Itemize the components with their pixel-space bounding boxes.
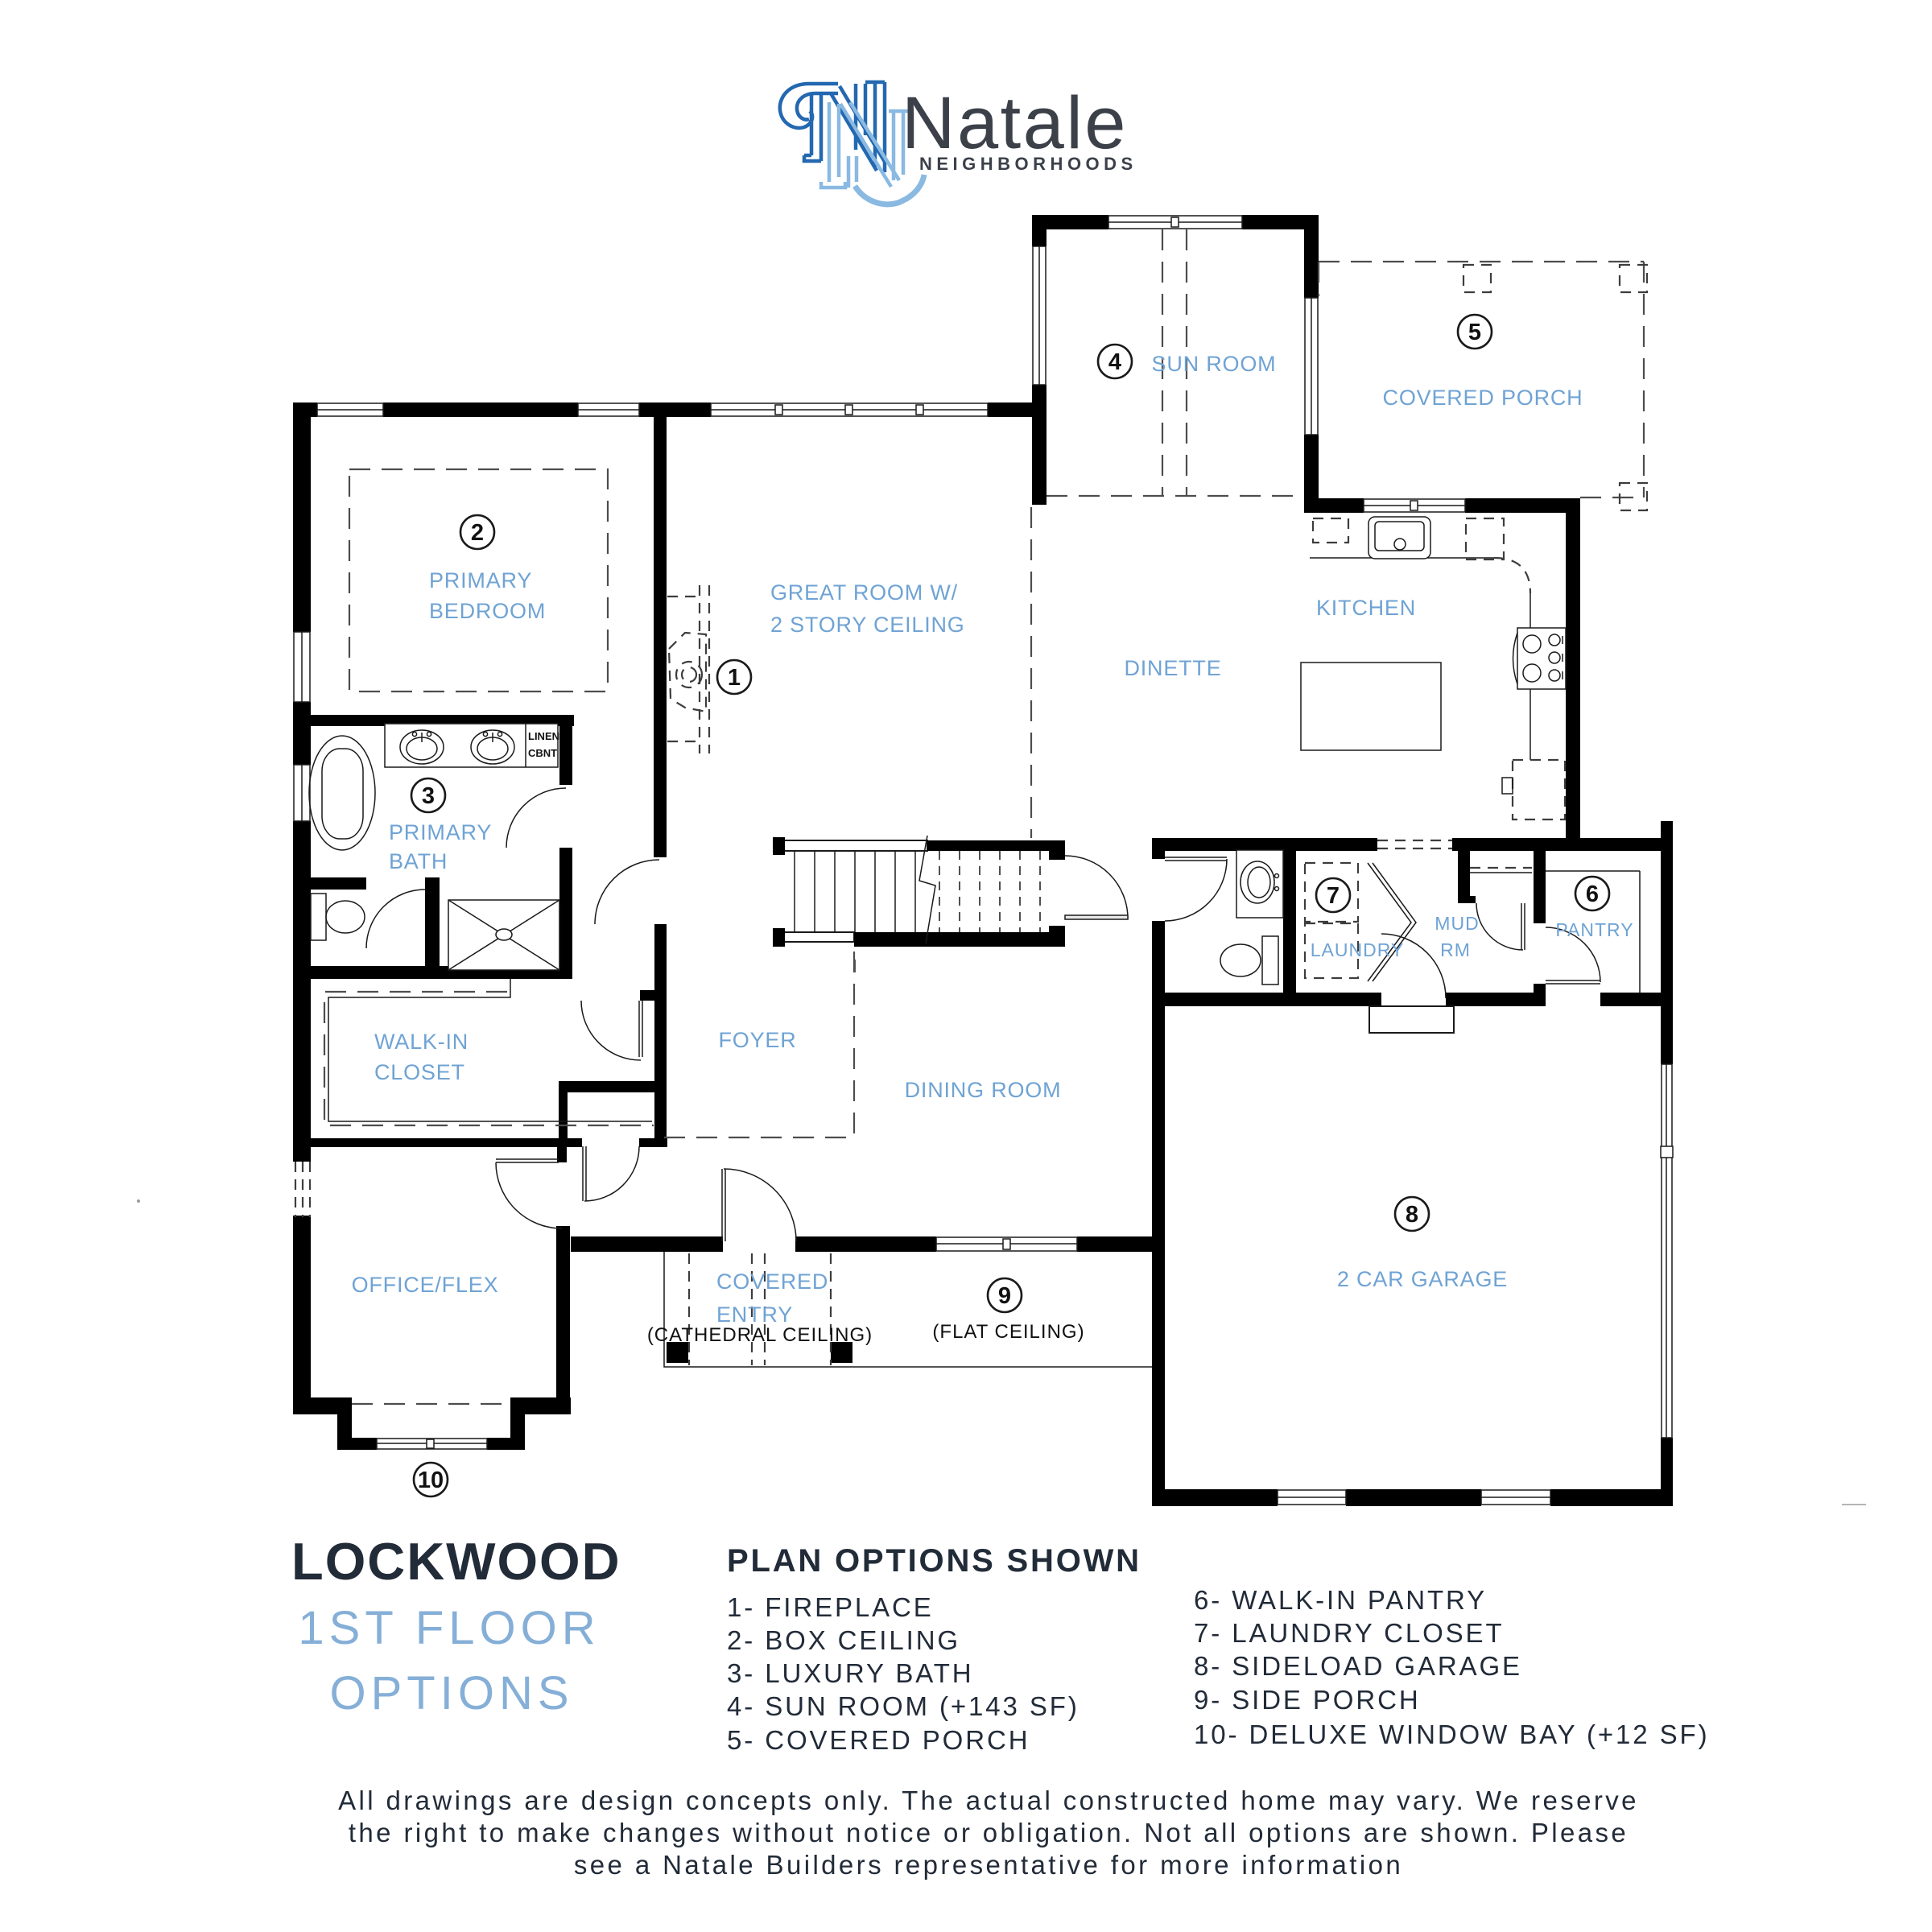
svg-text:CBNT: CBNT <box>528 747 557 759</box>
svg-text:LINEN: LINEN <box>528 730 559 742</box>
svg-text:ENTRY: ENTRY <box>716 1302 793 1327</box>
svg-text:2- BOX CEILING: 2- BOX CEILING <box>727 1625 960 1655</box>
svg-text:COVERED: COVERED <box>716 1269 828 1294</box>
svg-text:PRIMARY: PRIMARY <box>389 820 492 844</box>
svg-text:OFFICE/FLEX: OFFICE/FLEX <box>352 1273 499 1297</box>
svg-text:3: 3 <box>422 783 435 809</box>
svg-text:Natale: Natale <box>902 82 1128 164</box>
svg-text:6: 6 <box>1586 881 1599 907</box>
svg-text:SUN ROOM: SUN ROOM <box>1152 352 1277 376</box>
svg-text:5: 5 <box>1468 320 1481 345</box>
svg-text:8: 8 <box>1406 1202 1418 1228</box>
svg-text:FOYER: FOYER <box>718 1028 796 1052</box>
svg-text:NEIGHBORHOODS: NEIGHBORHOODS <box>919 154 1137 174</box>
svg-text:6- WALK-IN PANTRY: 6- WALK-IN PANTRY <box>1194 1585 1487 1615</box>
svg-text:(CATHEDRAL CEILING): (CATHEDRAL CEILING) <box>647 1324 873 1346</box>
svg-text:COVERED PORCH: COVERED PORCH <box>1383 386 1583 410</box>
svg-text:MUD: MUD <box>1435 913 1479 934</box>
svg-text:4: 4 <box>1108 349 1121 375</box>
svg-text:9- SIDE PORCH: 9- SIDE PORCH <box>1194 1685 1421 1715</box>
svg-text:1ST FLOOR: 1ST FLOOR <box>298 1602 600 1654</box>
svg-text:GREAT ROOM W/: GREAT ROOM W/ <box>770 580 958 605</box>
svg-text:5- COVERED PORCH: 5- COVERED PORCH <box>727 1725 1030 1755</box>
svg-text:2: 2 <box>471 520 484 546</box>
svg-text:KITCHEN: KITCHEN <box>1316 596 1416 620</box>
svg-text:(FLAT CEILING): (FLAT CEILING) <box>932 1321 1084 1343</box>
svg-text:10: 10 <box>418 1468 444 1493</box>
svg-text:8- SIDELOAD GARAGE: 8- SIDELOAD GARAGE <box>1194 1651 1522 1681</box>
svg-text:3- LUXURY BATH: 3- LUXURY BATH <box>727 1658 974 1688</box>
svg-text:9: 9 <box>998 1283 1011 1309</box>
svg-text:7: 7 <box>1327 883 1340 909</box>
svg-text:1: 1 <box>728 665 741 691</box>
svg-text:WALK-IN: WALK-IN <box>374 1030 469 1054</box>
svg-text:OPTIONS: OPTIONS <box>329 1667 573 1719</box>
svg-text:2 CAR GARAGE: 2 CAR GARAGE <box>1337 1267 1508 1291</box>
svg-text:PANTRY: PANTRY <box>1555 919 1633 940</box>
svg-text:1- FIREPLACE: 1- FIREPLACE <box>727 1592 934 1622</box>
svg-text:LAUNDRY: LAUNDRY <box>1311 939 1405 960</box>
svg-text:All drawings are design concep: All drawings are design concepts only. T… <box>338 1785 1639 1815</box>
svg-text:PRIMARY: PRIMARY <box>429 568 532 592</box>
svg-text:BATH: BATH <box>389 849 448 873</box>
svg-text:RM: RM <box>1440 939 1471 960</box>
svg-text:10- DELUXE WINDOW BAY (+12 SF): 10- DELUXE WINDOW BAY (+12 SF) <box>1194 1719 1710 1749</box>
svg-text:7- LAUNDRY CLOSET: 7- LAUNDRY CLOSET <box>1194 1618 1505 1648</box>
svg-text:PLAN OPTIONS SHOWN: PLAN OPTIONS SHOWN <box>727 1543 1141 1579</box>
svg-text:DINING ROOM: DINING ROOM <box>905 1078 1062 1102</box>
svg-text:LOCKWOOD: LOCKWOOD <box>291 1532 621 1591</box>
svg-text:CLOSET: CLOSET <box>374 1060 465 1084</box>
svg-text:DINETTE: DINETTE <box>1124 656 1221 680</box>
svg-text:4- SUN ROOM (+143 SF): 4- SUN ROOM (+143 SF) <box>727 1691 1080 1721</box>
svg-text:2 STORY CEILING: 2 STORY CEILING <box>770 613 965 637</box>
svg-text:BEDROOM: BEDROOM <box>429 599 546 623</box>
svg-text:the right to make changes with: the right to make changes without notice… <box>349 1818 1629 1847</box>
svg-text:see a Natale Builders represen: see a Natale Builders representative for… <box>574 1850 1403 1880</box>
